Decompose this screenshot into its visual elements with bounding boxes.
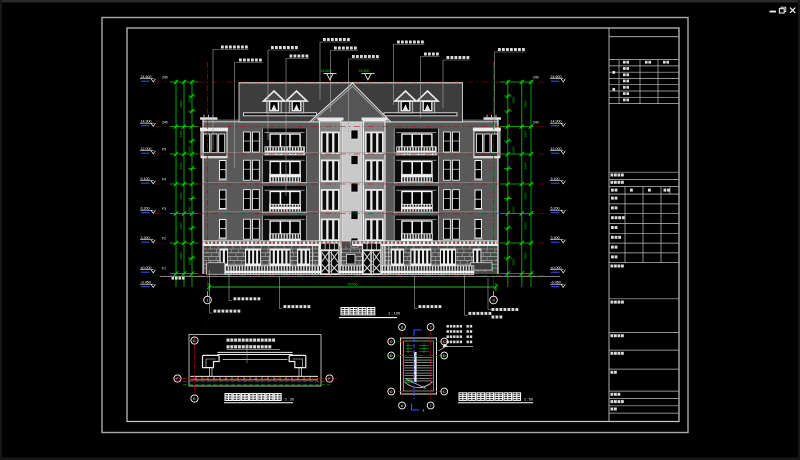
svg-text:1500: 1500 [512,258,516,265]
svg-text:1500: 1500 [188,258,192,265]
svg-text:2900: 2900 [179,100,183,107]
svg-text:-0.450: -0.450 [551,281,561,285]
svg-text:±0.000: ±0.000 [141,266,152,270]
svg-text:24.600: 24.600 [359,69,370,73]
svg-text:F4: F4 [162,178,166,182]
svg-text:1500: 1500 [512,96,516,103]
svg-text:24.600: 24.600 [321,69,332,73]
svg-text:D: D [443,354,446,358]
svg-text:2900: 2900 [179,130,183,137]
svg-text:1500: 1500 [188,206,192,213]
svg-text:1500: 1500 [188,146,192,153]
svg-text:C: C [390,340,393,344]
svg-text:29700: 29700 [348,283,358,287]
svg-text:C: C [390,390,393,394]
svg-text:1 : 100: 1 : 100 [388,311,401,316]
svg-text:1500: 1500 [188,96,192,103]
svg-text:2900: 2900 [524,162,528,169]
svg-text:1: 1 [423,409,425,413]
svg-text:E: E [193,397,196,401]
svg-text:1500: 1500 [512,206,516,213]
svg-text:D: D [390,354,393,358]
svg-text:2900: 2900 [179,252,183,259]
svg-text:240: 240 [162,121,168,125]
svg-text:1 : 30: 1 : 30 [285,398,294,402]
svg-text:F5: F5 [162,148,166,152]
svg-text:240: 240 [162,76,168,80]
svg-text:2900: 2900 [524,192,528,199]
svg-text:6: 6 [401,404,403,408]
svg-text:C: C [443,340,446,344]
svg-text:240: 240 [533,76,539,80]
svg-text:1500: 1500 [512,146,516,153]
svg-text:7: 7 [430,325,432,329]
svg-text:E: E [193,339,196,343]
svg-text:-0.450: -0.450 [141,281,151,285]
svg-text:2900: 2900 [179,222,183,229]
svg-text:2900: 2900 [179,162,183,169]
svg-text:F3: F3 [162,207,166,211]
svg-text:2900: 2900 [524,222,528,229]
svg-text:±0.000: ±0.000 [551,266,562,270]
svg-text:F1: F1 [162,267,166,271]
svg-text:C: C [443,390,446,394]
svg-text:2900: 2900 [524,100,528,107]
svg-text:1 : 50: 1 : 50 [524,398,533,402]
svg-text:7: 7 [430,404,432,408]
svg-text:240: 240 [533,121,539,125]
svg-text:6: 6 [401,325,403,329]
svg-text:2900: 2900 [524,130,528,137]
svg-text:2900: 2900 [179,192,183,199]
svg-text:2900: 2900 [524,252,528,259]
svg-text:F2: F2 [162,237,166,241]
